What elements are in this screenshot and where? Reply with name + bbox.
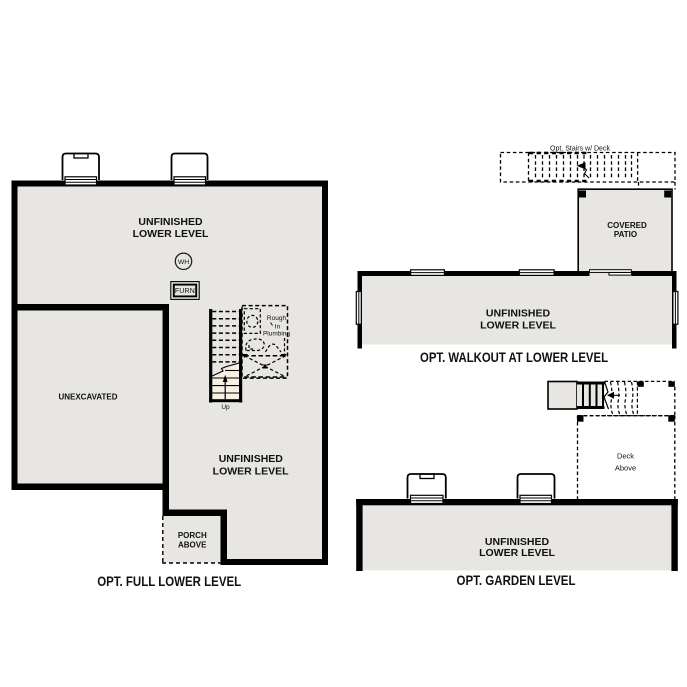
svg-text:Rough: Rough <box>267 315 287 322</box>
svg-text:In: In <box>275 323 281 330</box>
svg-text:OPT. WALKOUT AT LOWER LEVEL: OPT. WALKOUT AT LOWER LEVEL <box>420 349 608 365</box>
svg-text:LOWER LEVEL: LOWER LEVEL <box>213 466 289 478</box>
svg-text:PATIO: PATIO <box>614 230 637 239</box>
svg-text:Above: Above <box>615 464 636 473</box>
svg-text:UNFINISHED: UNFINISHED <box>138 216 203 228</box>
svg-text:FURN: FURN <box>175 286 195 295</box>
svg-text:WH: WH <box>178 259 189 266</box>
svg-text:LOWER LEVEL: LOWER LEVEL <box>133 228 209 240</box>
svg-text:LOWER LEVEL: LOWER LEVEL <box>480 320 556 332</box>
svg-text:ABOVE: ABOVE <box>178 540 207 549</box>
svg-text:Opt. Stairs w/ Deck: Opt. Stairs w/ Deck <box>550 145 610 152</box>
svg-text:UNFINISHED: UNFINISHED <box>486 308 551 320</box>
svg-text:UNFINISHED: UNFINISHED <box>219 453 284 465</box>
svg-text:UNEXCAVATED: UNEXCAVATED <box>59 392 118 402</box>
svg-text:LOWER LEVEL: LOWER LEVEL <box>479 547 555 559</box>
svg-text:Plumbing: Plumbing <box>263 331 290 338</box>
svg-text:Deck: Deck <box>617 452 634 461</box>
svg-text:COVERED: COVERED <box>607 221 647 230</box>
svg-text:Up: Up <box>221 404 230 411</box>
svg-text:PORCH: PORCH <box>178 531 207 540</box>
svg-text:OPT. FULL LOWER LEVEL: OPT. FULL LOWER LEVEL <box>97 573 241 589</box>
svg-text:OPT. GARDEN LEVEL: OPT. GARDEN LEVEL <box>457 572 576 588</box>
